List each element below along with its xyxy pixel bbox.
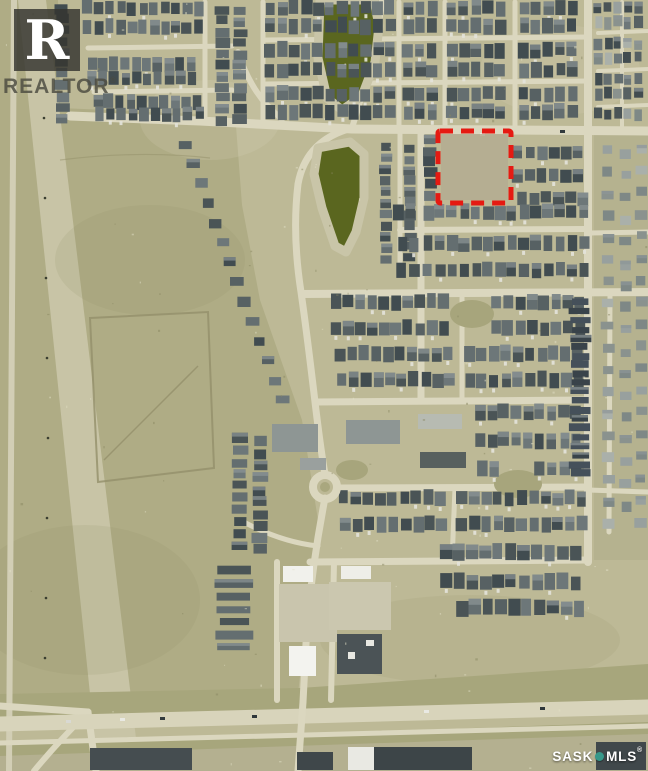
sask-text: SASK <box>552 749 593 764</box>
realtor-logo-icon: R <box>14 9 80 71</box>
realtor-watermark: R REALTOR® <box>3 9 117 97</box>
realtor-label: REALTOR® <box>3 76 117 97</box>
registered-mark: ® <box>110 75 118 85</box>
sask-mls-watermark: SASK MLS ® <box>552 749 643 764</box>
mls-text: MLS <box>606 749 637 764</box>
highlighted-lot-boundary <box>438 131 511 203</box>
aerial-map: R REALTOR® SASK MLS ® <box>0 0 648 771</box>
satellite-image <box>0 0 648 771</box>
registered-mark: ® <box>637 747 643 754</box>
realtor-logo-letter: R <box>25 13 70 67</box>
mls-dot-icon <box>595 752 604 761</box>
